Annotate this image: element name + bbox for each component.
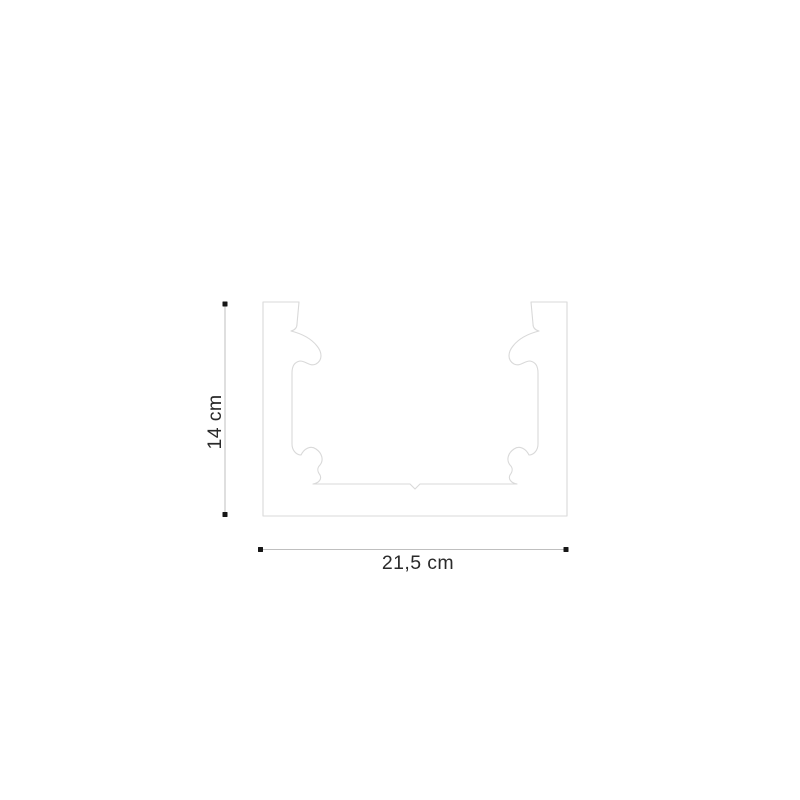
page-background: { "figure": { "dimensions": { "height": … bbox=[0, 0, 800, 800]
width-dimension-label: 21,5 cm bbox=[382, 552, 454, 574]
width-dimension-right-dot bbox=[564, 547, 569, 552]
profile-cross-section bbox=[263, 302, 567, 516]
height-dimension-label: 14 cm bbox=[204, 394, 226, 449]
height-dimension-top-dot bbox=[223, 302, 228, 307]
profile-technical-drawing: 14 cm 21,5 cm bbox=[0, 0, 800, 800]
height-dimension-bottom-dot bbox=[223, 512, 228, 517]
width-dimension: 21,5 cm bbox=[258, 547, 569, 574]
drawing-area: 14 cm 21,5 cm bbox=[0, 0, 800, 800]
profile-outline bbox=[263, 302, 567, 516]
width-dimension-left-dot bbox=[258, 547, 263, 552]
height-dimension: 14 cm bbox=[204, 302, 228, 518]
